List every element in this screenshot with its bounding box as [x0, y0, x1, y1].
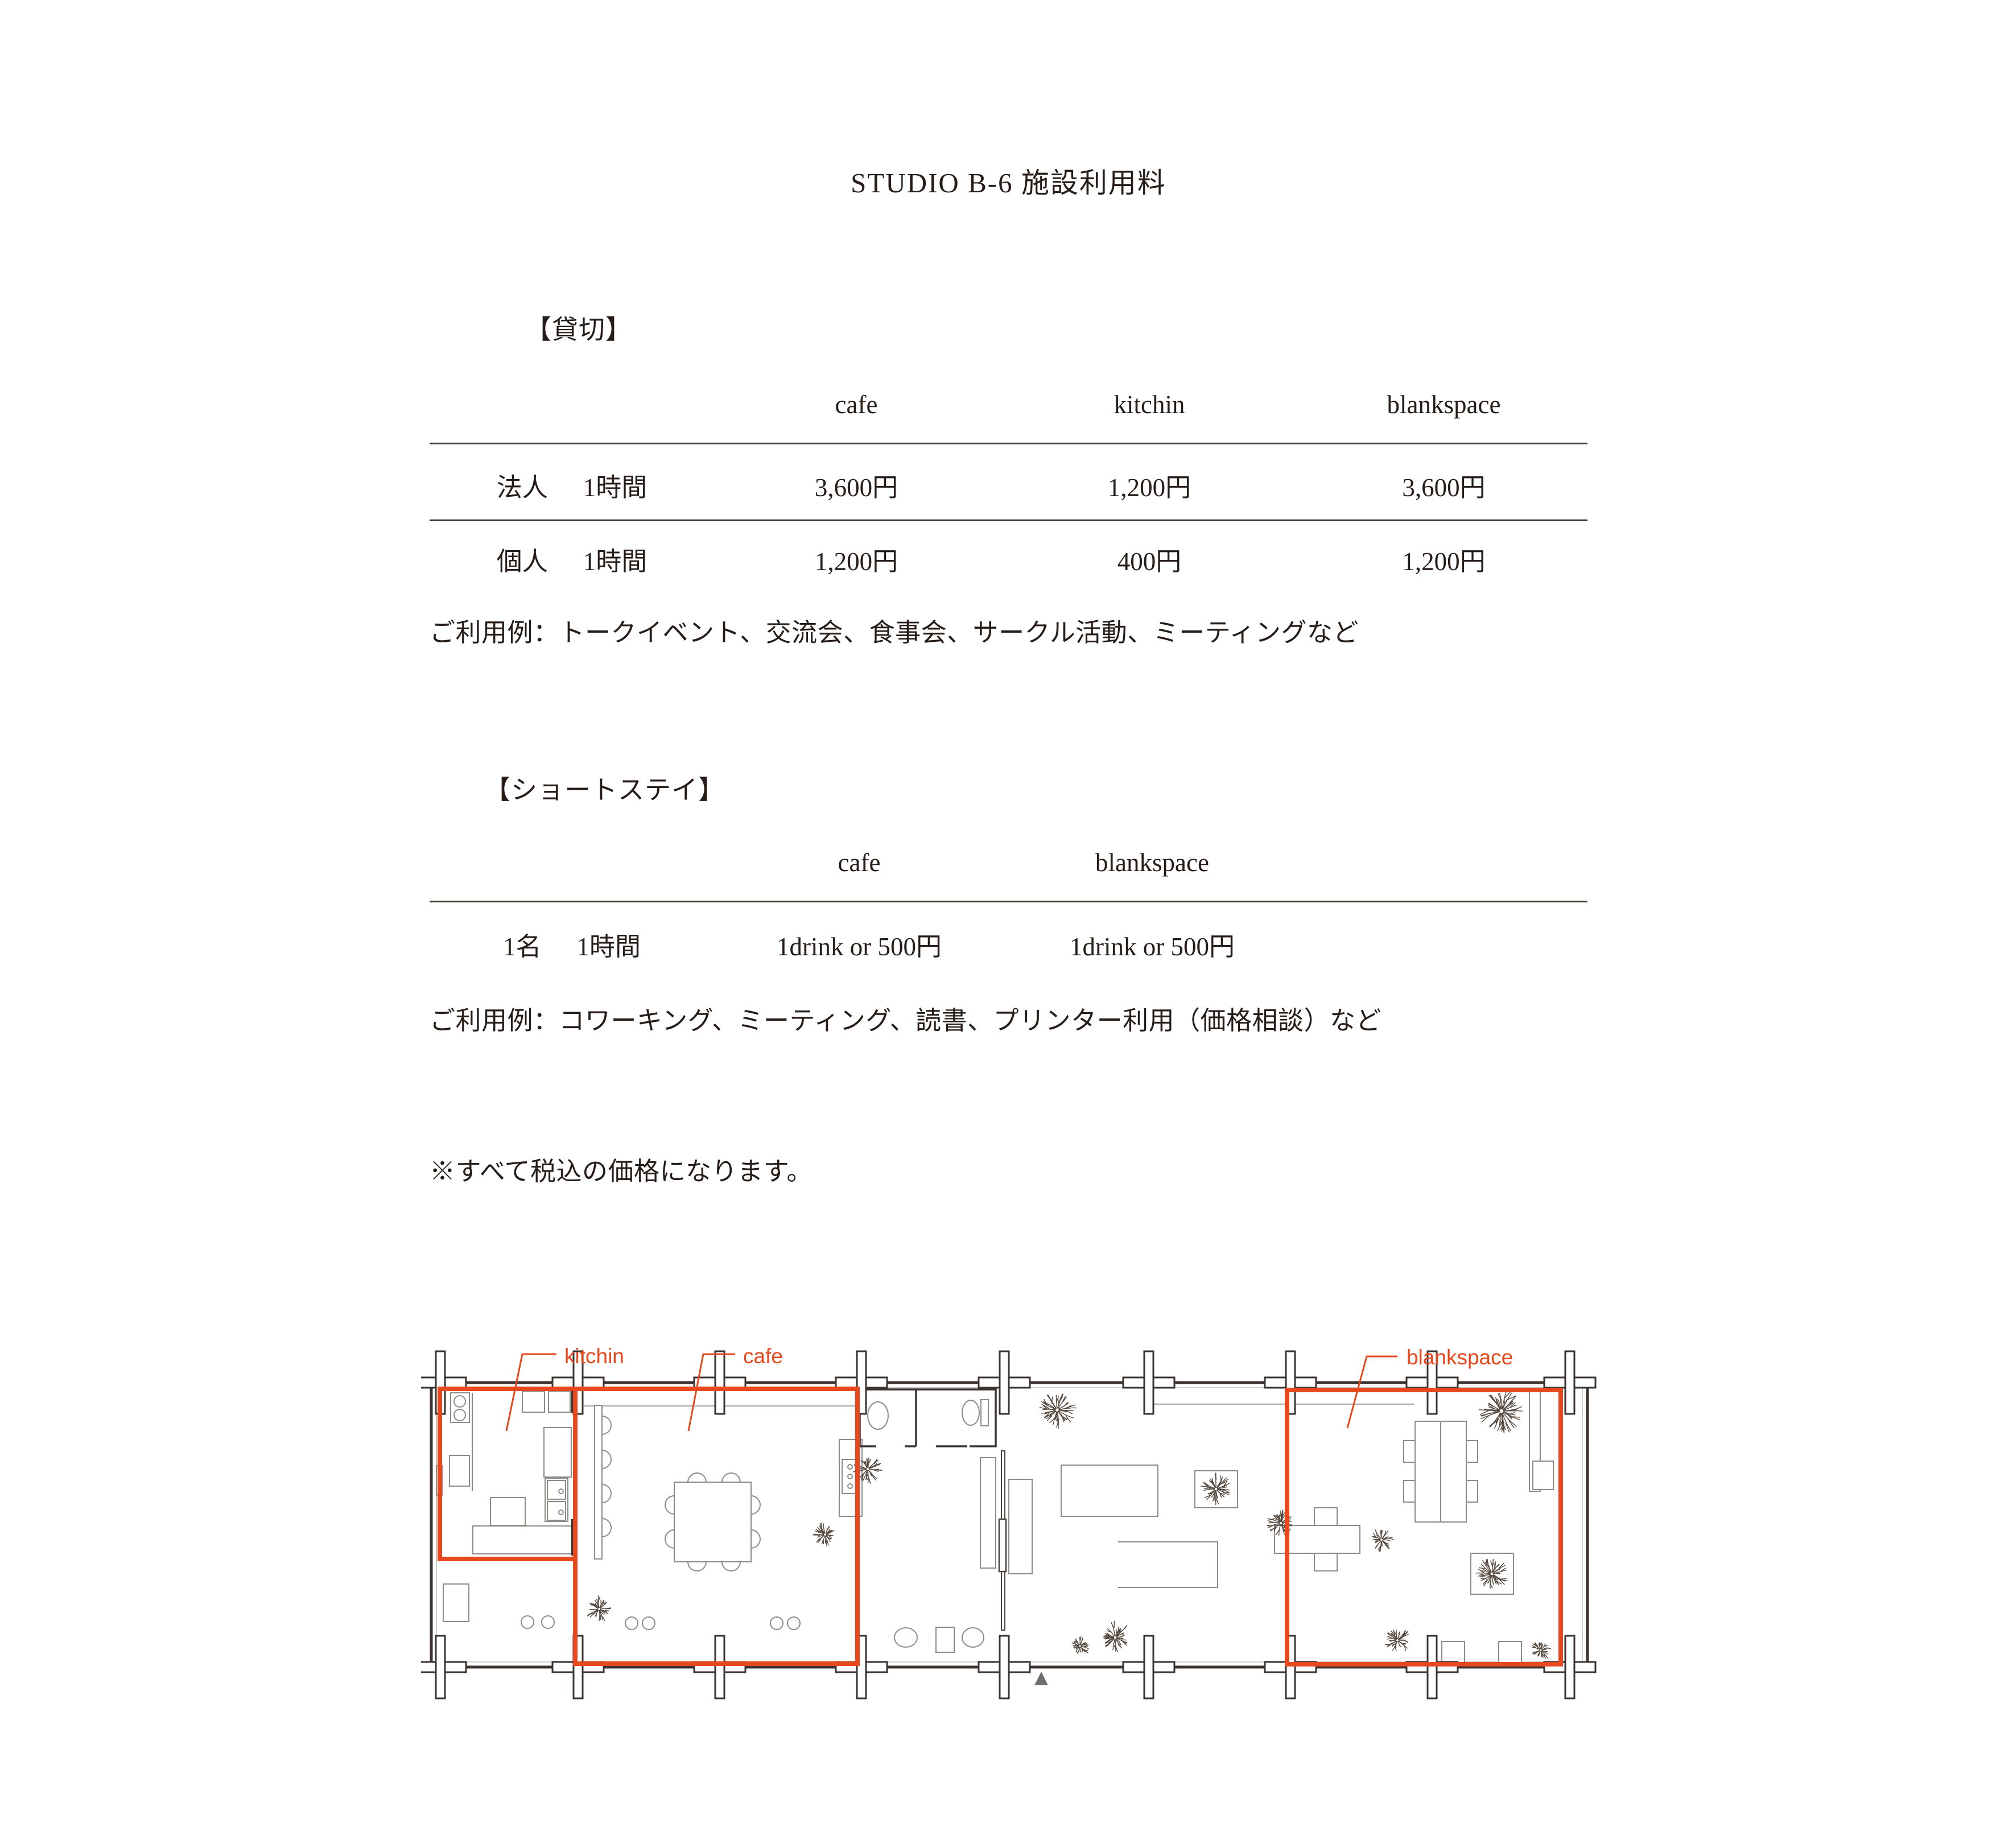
rental-price-cafe: 1,200円: [714, 541, 999, 577]
rental-header-cafe: cafe: [714, 390, 999, 419]
shortstay-header-blankspace: blankspace: [1004, 848, 1300, 877]
pricing-document: STUDIO B-6 施設利用料 【貸切】 cafe kitchin blank…: [0, 0, 1996, 1848]
stove: [451, 1393, 469, 1422]
rental-price-kitchin: 400円: [999, 541, 1300, 577]
cafe-counter: [595, 1405, 602, 1559]
cafe-leader: [688, 1354, 735, 1431]
tax-note: ※すべて税込の価格になります。: [430, 1150, 813, 1187]
rental-usage-note: ご利用例：トークイベント、交流会、食事会、サークル活動、ミーティングなど: [430, 612, 1359, 649]
section-heading-shortstay: 【ショートステイ】: [484, 769, 725, 807]
shortstay-header-spacer: [430, 848, 714, 877]
kitchin-label: kitchin: [564, 1344, 624, 1368]
shortstay-usage-note: ご利用例：コワーキング、ミーティング、読書、プリンター利用（価格相談）など: [430, 1000, 1381, 1037]
hall-table: [1061, 1465, 1158, 1516]
rental-table-rule-mid: [430, 519, 1587, 521]
rental-price-blankspace: 1,200円: [1300, 541, 1587, 577]
rental-price-kitchin: 1,200円: [999, 467, 1300, 504]
shortstay-header-cafe: cafe: [714, 848, 1004, 877]
floor-plan: kitchin cafe blankspace: [421, 1331, 1599, 1718]
hall-bench: [1118, 1542, 1218, 1587]
rental-row-corporate: 法人1時間 3,600円 1,200円 3,600円: [430, 467, 1587, 504]
shortstay-price-blankspace: 1drink or 500円: [1004, 926, 1300, 963]
north-arrow: [1034, 1672, 1048, 1685]
rental-header-spacer: [430, 390, 714, 419]
meeting-table: [1415, 1421, 1441, 1522]
partition: [999, 1451, 1006, 1630]
rental-price-blankspace: 3,600円: [1300, 467, 1587, 504]
kitchen-bench: [473, 1526, 572, 1554]
rental-row-label: 法人1時間: [430, 467, 714, 504]
page-title: STUDIO B-6 施設利用料: [430, 160, 1587, 201]
shortstay-table-header-row: cafe blankspace: [430, 848, 1587, 877]
sink: [868, 1402, 888, 1429]
kitchen-counter: [544, 1428, 571, 1477]
shortstay-table-rule: [430, 901, 1587, 902]
rental-header-blankspace: blankspace: [1300, 390, 1587, 419]
rental-table-rule-top: [430, 443, 1587, 444]
rental-row-individual: 個人1時間 1,200円 400円 1,200円: [430, 541, 1587, 577]
cafe-table: [674, 1482, 751, 1562]
shortstay-row: 1名1時間 1drink or 500円 1drink or 500円: [430, 926, 1587, 963]
cafe-label: cafe: [743, 1344, 783, 1368]
shortstay-price-cafe: 1drink or 500円: [714, 926, 1004, 963]
rental-price-cafe: 3,600円: [714, 467, 999, 504]
blankspace-label: blankspace: [1407, 1346, 1513, 1369]
rental-table-header-row: cafe kitchin blankspace: [430, 390, 1587, 419]
toilet-rooms: [860, 1389, 996, 1446]
rental-header-kitchin: kitchin: [999, 390, 1300, 419]
shortstay-row-label: 1名1時間: [430, 926, 714, 963]
toilet: [962, 1400, 979, 1425]
section-heading-rental: 【貸切】: [525, 309, 632, 346]
rental-row-label: 個人1時間: [430, 541, 714, 577]
